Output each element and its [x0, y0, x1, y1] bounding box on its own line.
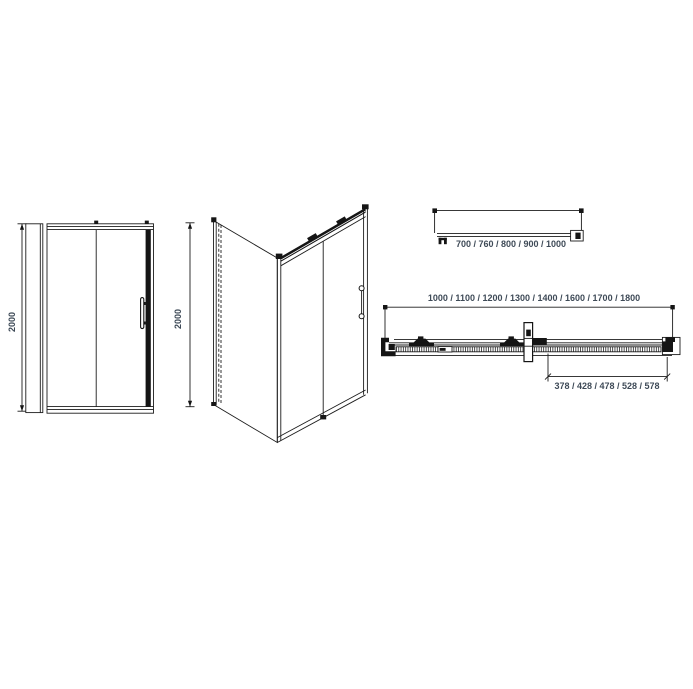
- perspective-view: [186, 204, 369, 442]
- shower-enclosure-drawing: [0, 0, 693, 689]
- side-panel-width-dimension: [432, 208, 583, 233]
- door-plan-latch-block: [438, 347, 452, 352]
- door-plan-roller-carriage: [500, 336, 524, 346]
- side-panel-width-options-label: 700 / 760 / 800 / 900 / 1000: [436, 240, 586, 250]
- front-door-frame: [47, 224, 154, 413]
- door-opening-width-dimension: [545, 354, 670, 382]
- front-height-dimension: [18, 224, 27, 411]
- perspective-side-panel: [211, 217, 277, 442]
- front-elevation-view: [18, 221, 154, 414]
- front-door-stile: [146, 230, 151, 407]
- technical-drawing-canvas: 2000 2000 700 / 760 / 800 / 900 / 1000 1…: [0, 0, 693, 689]
- door-plan-view: [381, 305, 680, 382]
- door-plan-roller-carriage: [409, 336, 434, 346]
- door-overall-width-options-label: 1000 / 1100 / 1200 / 1300 / 1400 / 1600 …: [409, 294, 659, 304]
- perspective-height-dimension-label: 2000: [174, 297, 184, 339]
- door-plan-left-wall-bracket: [381, 338, 396, 356]
- perspective-sliding-door: [276, 204, 369, 442]
- perspective-height-dimension: [186, 223, 195, 407]
- door-opening-width-options-label: 378 / 428 / 478 / 528 / 578: [532, 382, 682, 392]
- door-plan-right-wall-bracket: [662, 337, 680, 354]
- front-height-dimension-label: 2000: [8, 301, 18, 343]
